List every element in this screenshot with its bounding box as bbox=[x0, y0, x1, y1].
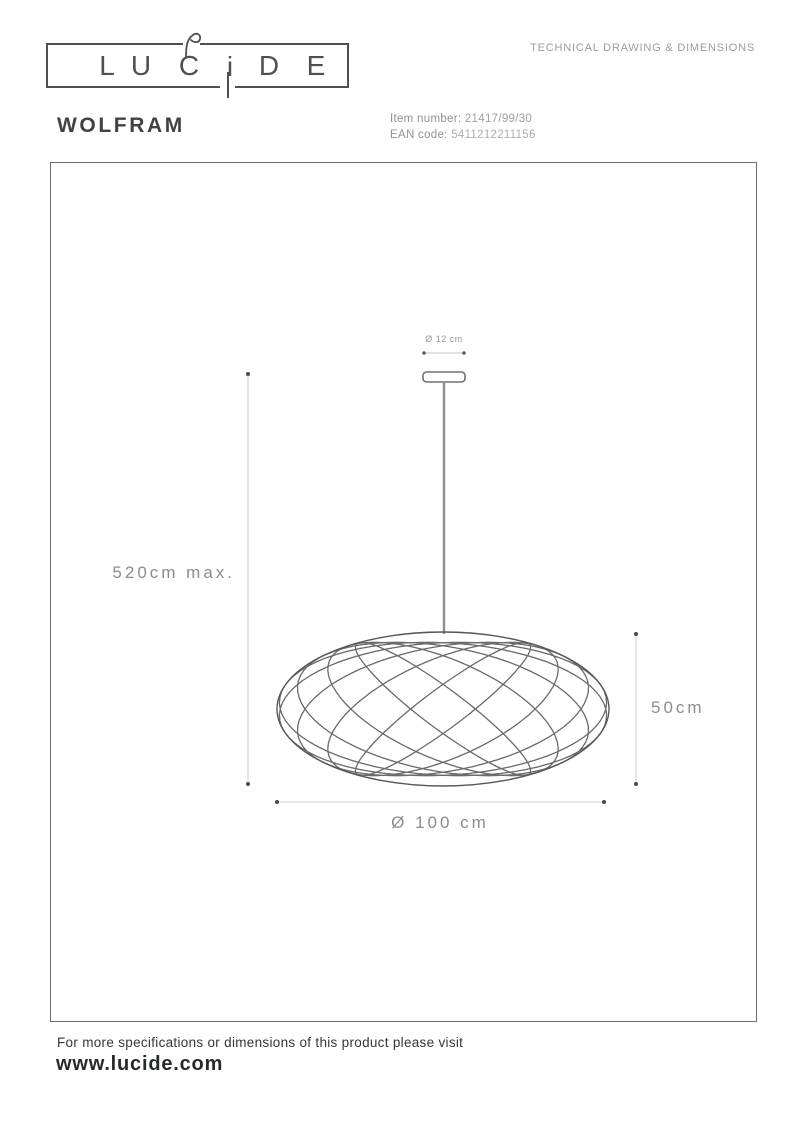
drop-height-label: 520cm max. bbox=[55, 563, 235, 583]
spec-sheet-page: L U C i D E TECHNICAL DRAWING & DIMENSIO… bbox=[0, 0, 800, 1133]
footer-note: For more specifications or dimensions of… bbox=[57, 1035, 463, 1050]
shade-diameter-dimension-line bbox=[275, 800, 606, 804]
wire-mesh-shade bbox=[279, 642, 606, 775]
canopy-dimension-line bbox=[422, 351, 465, 354]
drop-height-dimension-line bbox=[246, 372, 250, 786]
canopy-diameter-label: Ø 12 cm bbox=[402, 334, 486, 344]
shade-height-label: 50cm bbox=[651, 698, 705, 718]
ceiling-canopy bbox=[423, 372, 465, 382]
shade-height-dimension-line bbox=[634, 632, 638, 786]
website-link[interactable]: www.lucide.com bbox=[56, 1053, 223, 1076]
shade-diameter-label: Ø 100 cm bbox=[340, 813, 540, 833]
